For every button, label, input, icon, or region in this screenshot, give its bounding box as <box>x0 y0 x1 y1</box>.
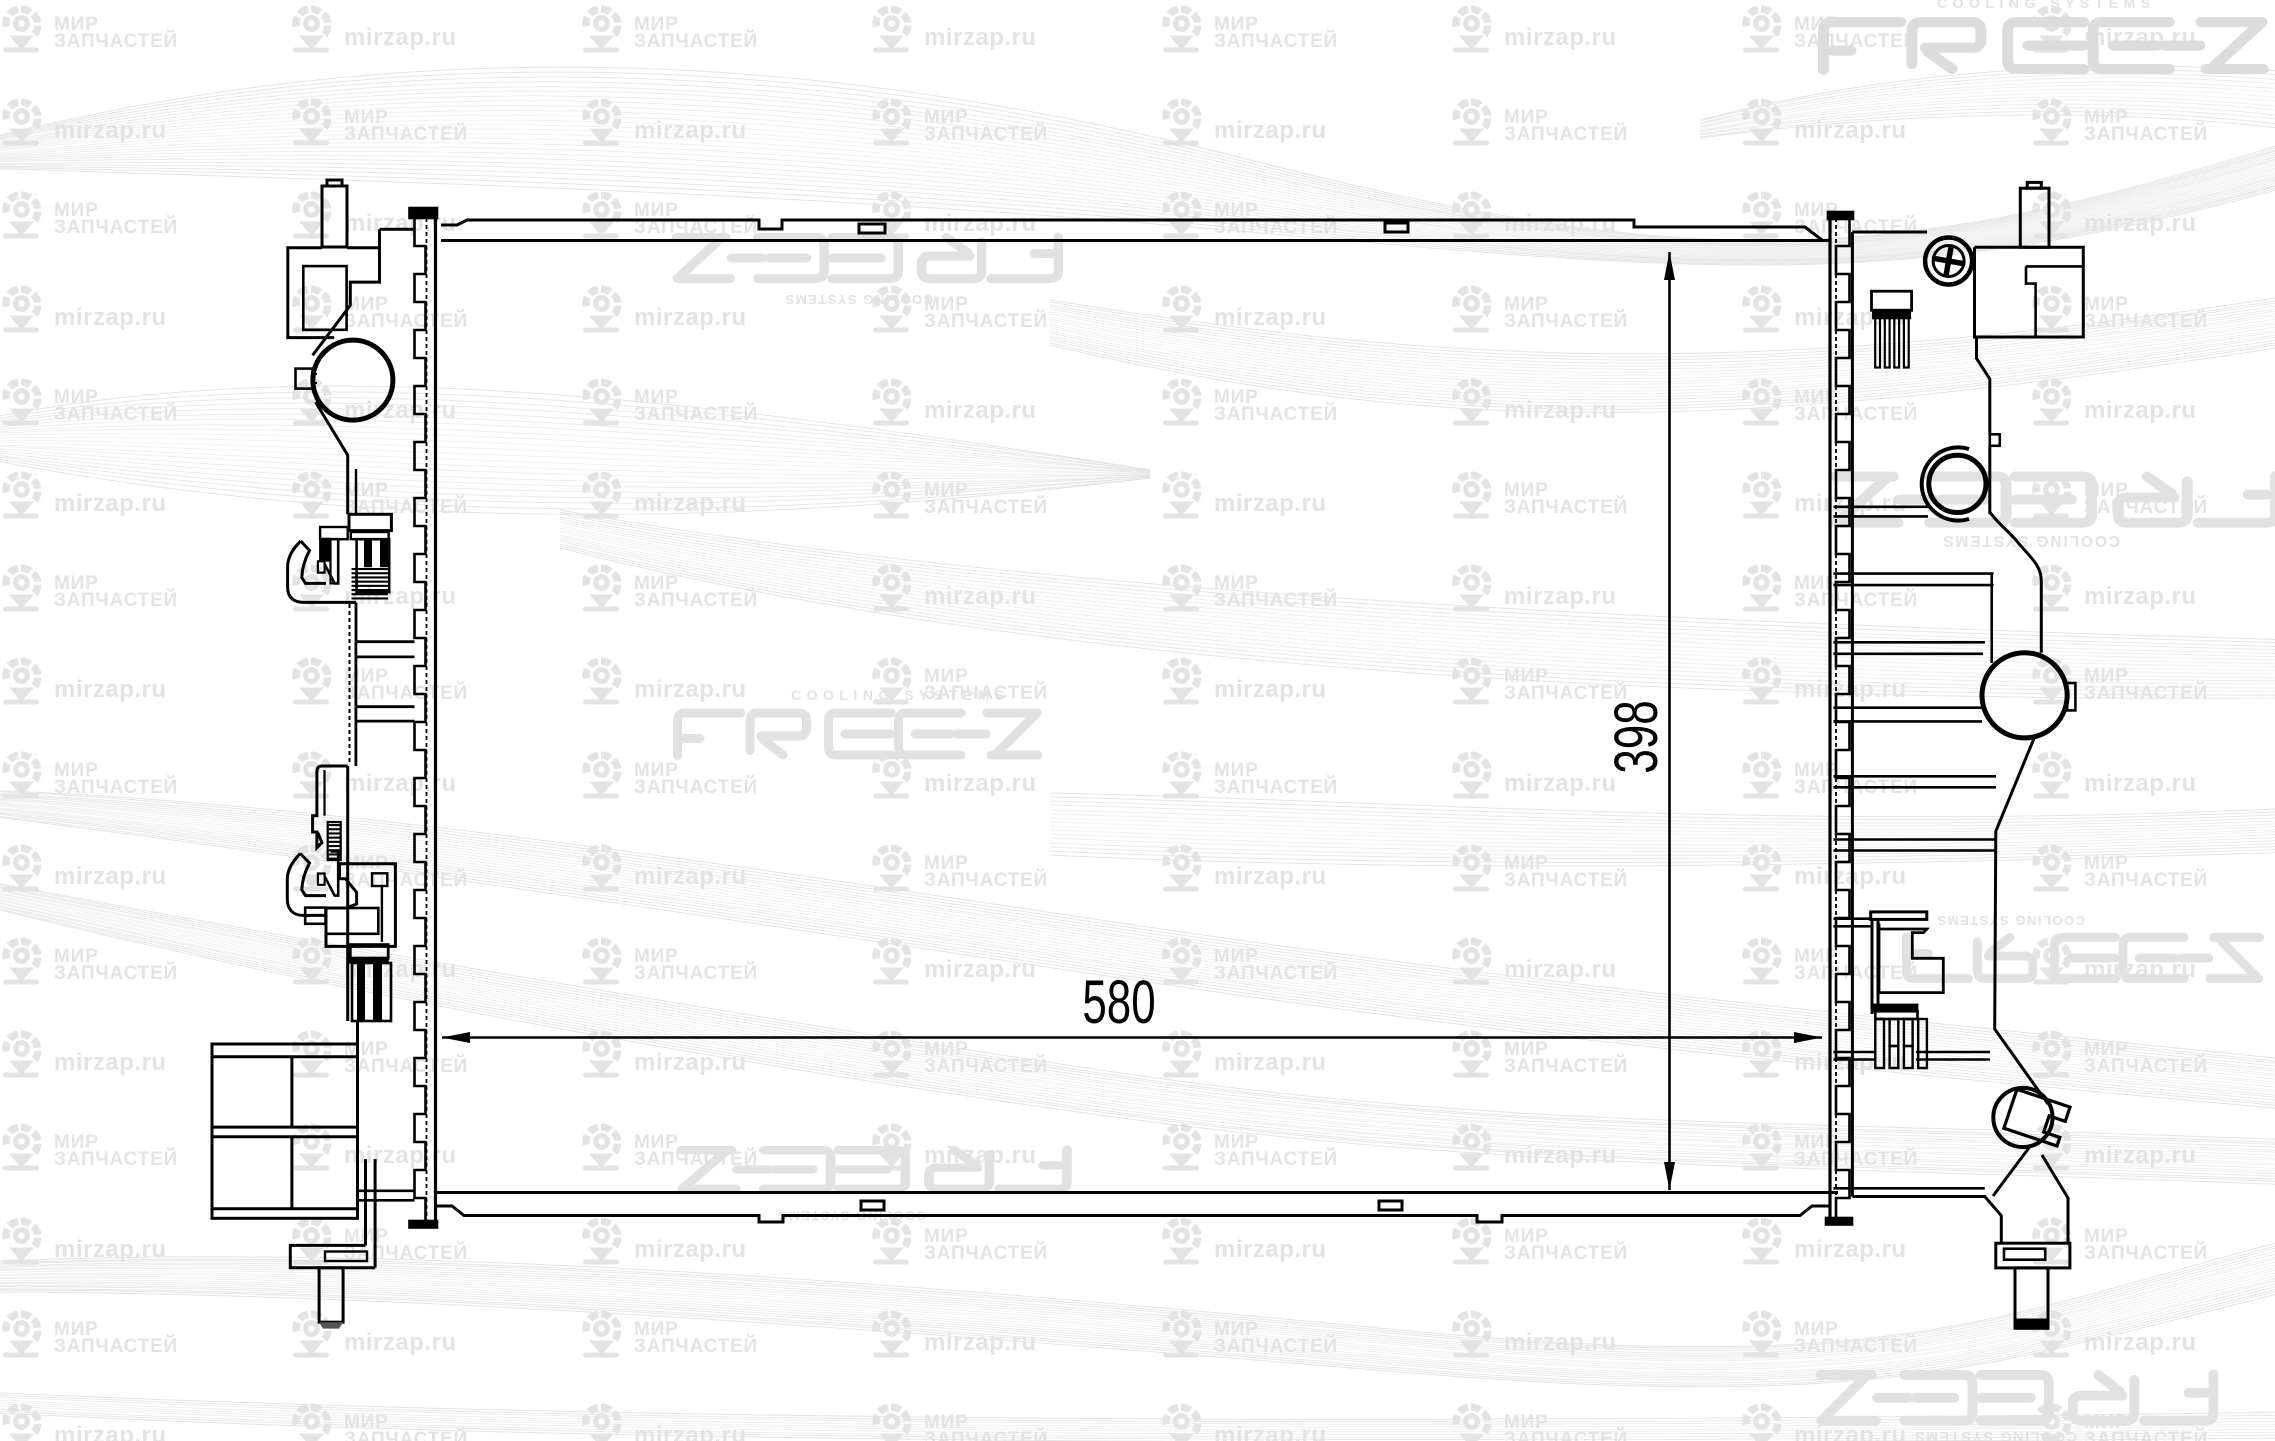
svg-text:398: 398 <box>1603 700 1671 773</box>
svg-text:580: 580 <box>1082 969 1155 1037</box>
